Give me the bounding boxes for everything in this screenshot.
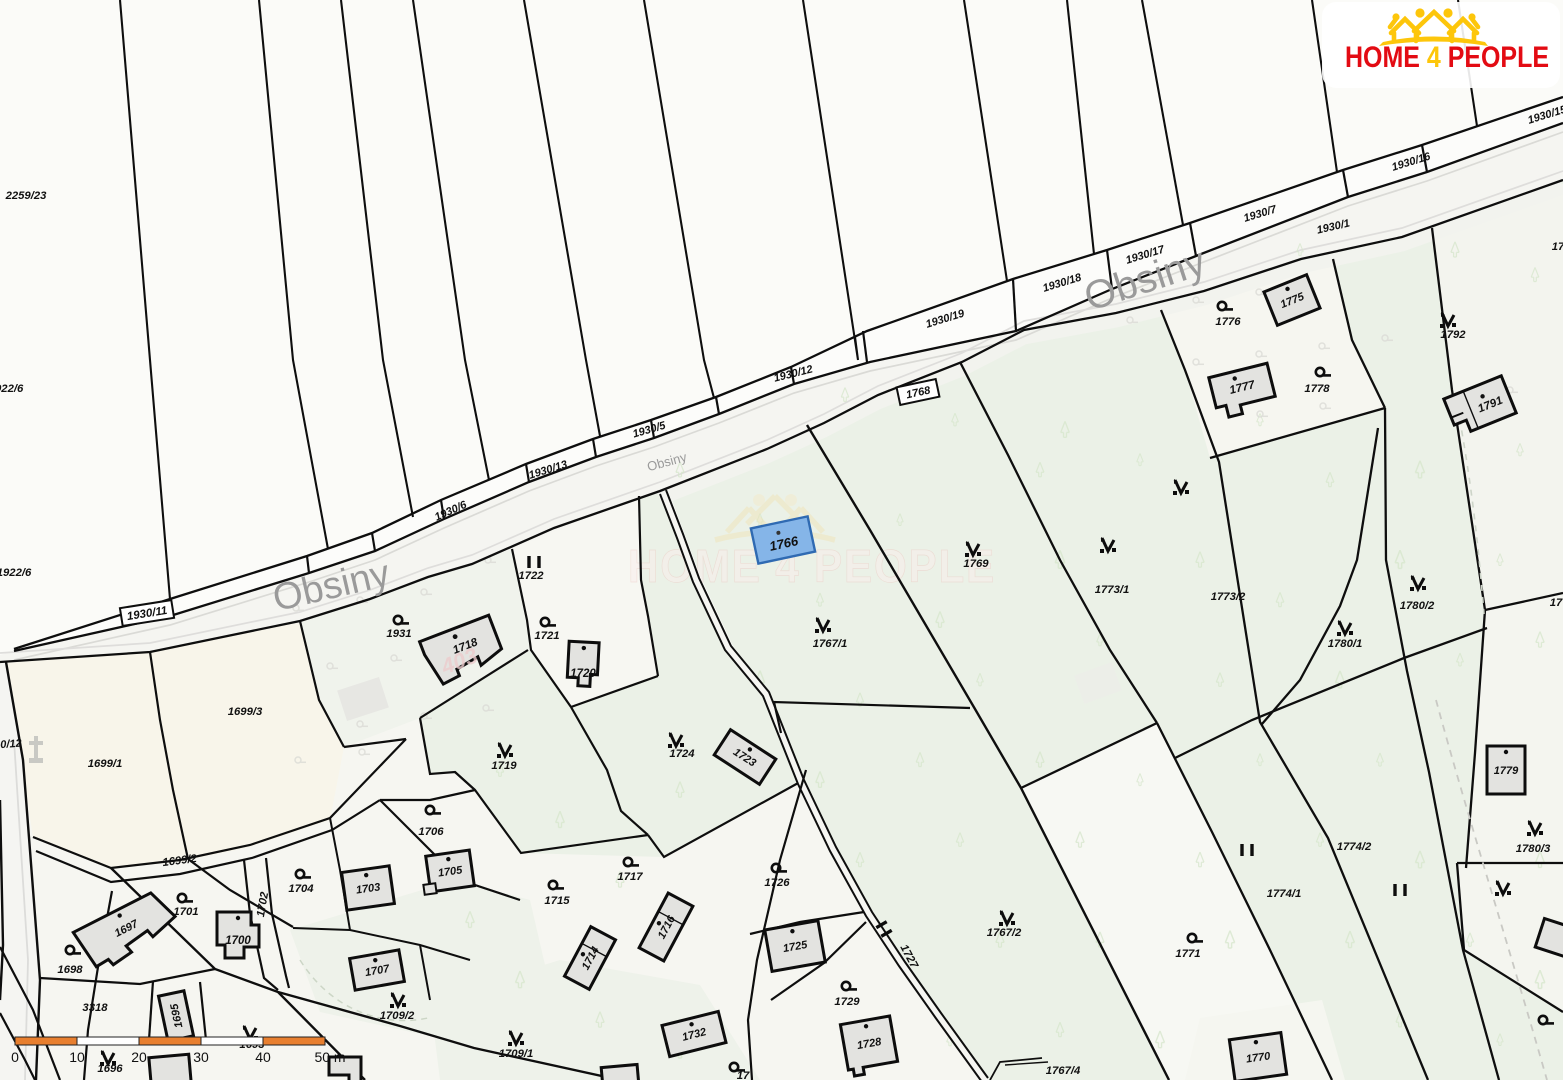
svg-text:1769: 1769 [963,558,989,570]
svg-text:17: 17 [1550,597,1563,609]
svg-text:3318: 3318 [82,1002,108,1014]
svg-text:1776: 1776 [1215,316,1241,328]
svg-text:2259/23: 2259/23 [5,190,48,202]
svg-text:20: 20 [131,1049,147,1065]
svg-text:1722: 1722 [518,570,544,582]
svg-text:1719: 1719 [491,760,517,772]
svg-text:1700: 1700 [225,935,251,947]
svg-text:1729: 1729 [834,996,860,1008]
svg-text:1701: 1701 [173,906,198,918]
svg-text:1715: 1715 [544,895,570,907]
svg-text:1922/6: 1922/6 [0,567,32,579]
svg-text:17: 17 [1552,241,1563,253]
svg-text:0: 0 [11,1049,19,1065]
svg-text:1931: 1931 [386,628,411,640]
svg-text:1721: 1721 [534,630,559,642]
svg-text:1922/6: 1922/6 [0,383,24,395]
svg-text:1706: 1706 [418,826,444,838]
svg-text:30: 30 [193,1049,209,1065]
svg-text:40: 40 [255,1049,271,1065]
svg-text:HOME 4 PEOPLE: HOME 4 PEOPLE [1345,41,1549,74]
svg-text:1774/1: 1774/1 [1267,888,1302,900]
svg-text:1709/1: 1709/1 [499,1048,534,1060]
svg-text:1780/2: 1780/2 [1400,600,1435,612]
svg-text:1699/3: 1699/3 [228,706,263,718]
svg-text:1724: 1724 [669,748,695,760]
svg-text:1709/2: 1709/2 [380,1010,415,1022]
svg-text:1779: 1779 [1494,765,1519,777]
svg-text:1773/2: 1773/2 [1211,591,1246,603]
svg-text:1699/1: 1699/1 [88,758,123,770]
svg-text:1696: 1696 [97,1063,123,1075]
svg-text:1726: 1726 [764,877,790,889]
svg-text:1767/1: 1767/1 [813,638,848,650]
svg-text:1704: 1704 [288,883,314,895]
svg-text:1774/2: 1774/2 [1337,841,1372,853]
svg-text:1778: 1778 [1304,383,1330,395]
svg-text:1792: 1792 [1440,329,1466,341]
svg-text:1773/1: 1773/1 [1095,584,1130,596]
svg-text:1767/4: 1767/4 [1046,1065,1081,1077]
svg-text:1698: 1698 [57,964,83,976]
svg-text:1720: 1720 [570,668,596,680]
svg-text:10: 10 [69,1049,85,1065]
svg-text:17: 17 [737,1070,750,1080]
svg-text:1780/3: 1780/3 [1516,843,1551,855]
svg-text:1717: 1717 [617,871,643,883]
svg-text:1767/2: 1767/2 [987,927,1022,939]
svg-text:1771: 1771 [1175,948,1200,960]
svg-text:1780/1: 1780/1 [1328,638,1363,650]
svg-text:50 m: 50 m [314,1049,345,1065]
